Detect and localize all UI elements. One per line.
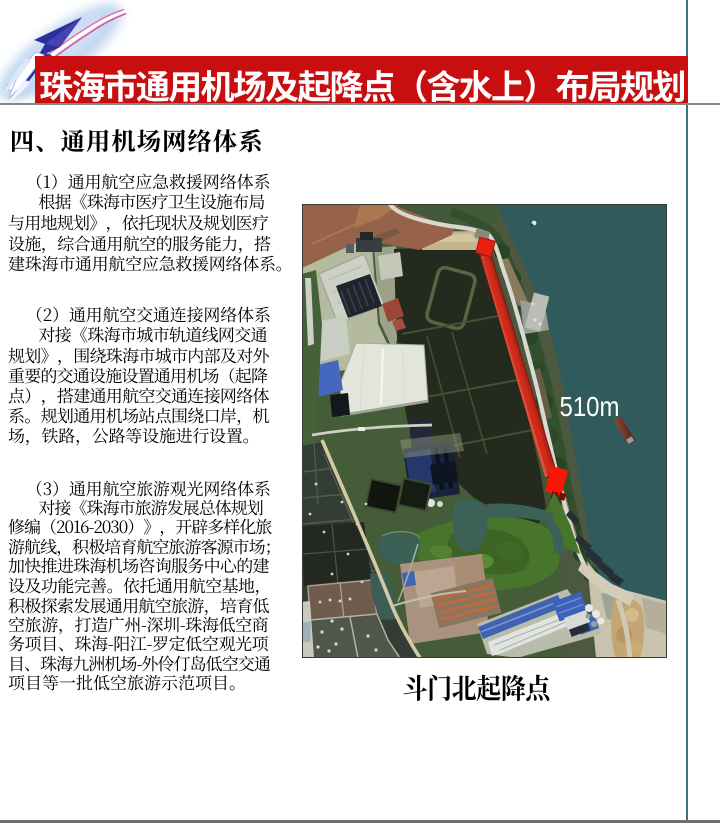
svg-text:510m: 510m (560, 391, 620, 422)
